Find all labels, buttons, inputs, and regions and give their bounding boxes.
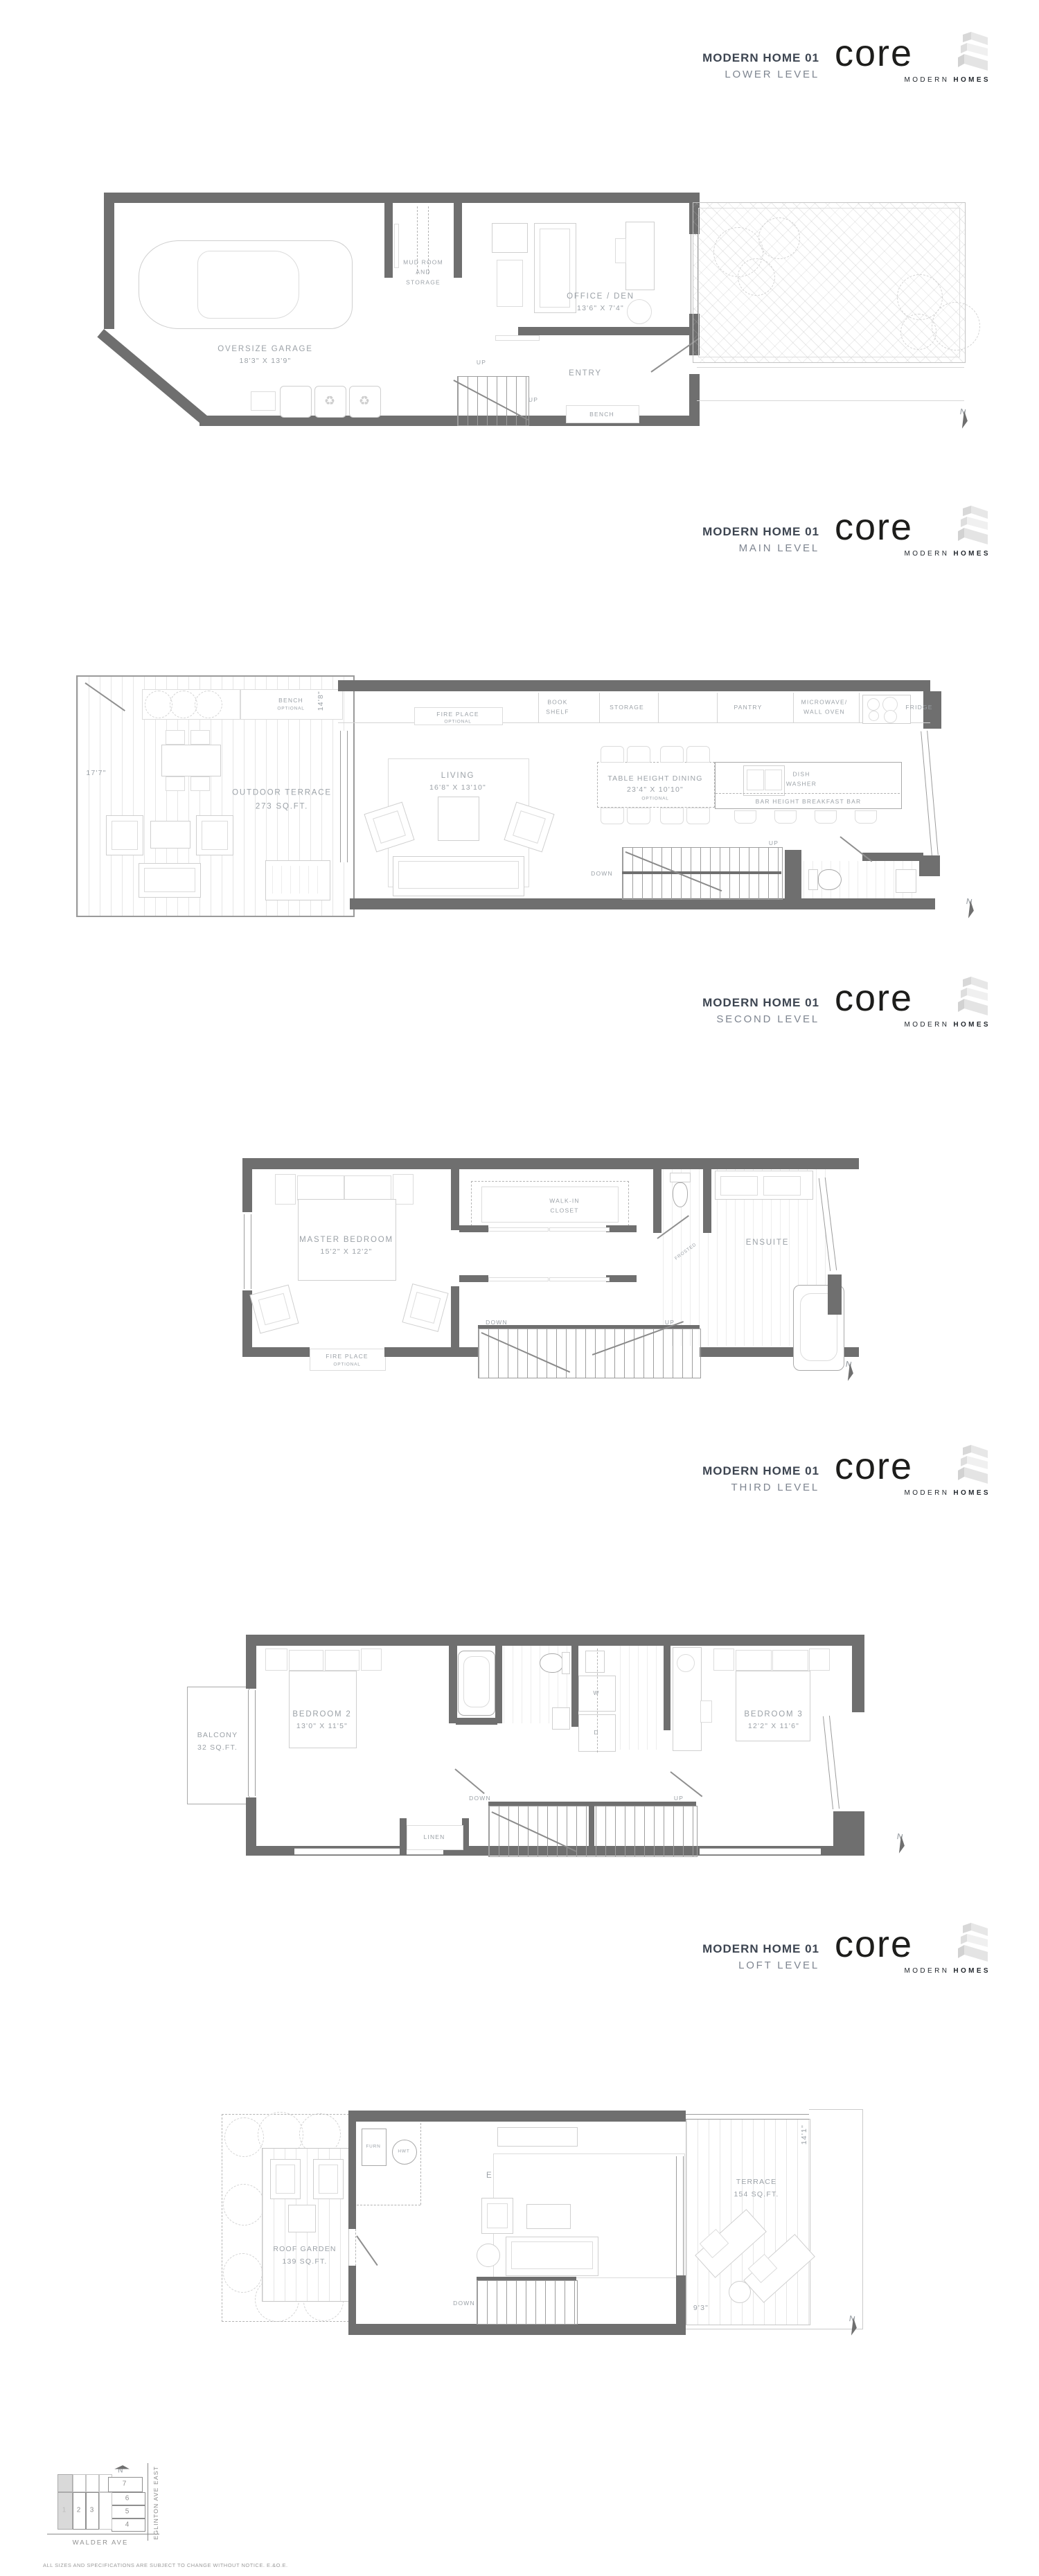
street-label-walder: WALDER AVE [73, 2539, 129, 2547]
roof-garden-door-leaf [356, 2235, 378, 2266]
recycle-icon: ♻ [359, 394, 370, 409]
dining-chair [601, 808, 624, 824]
roof-garden-label: ROOF GARDEN 139 SQ.FT. [273, 2244, 336, 2268]
north-arrow: N [951, 404, 973, 431]
deck-table [288, 2205, 316, 2232]
wall [828, 1274, 842, 1315]
toilet-tank [670, 1173, 691, 1182]
stairs-down-label: DOWN [486, 1317, 508, 1327]
shelf [394, 224, 399, 268]
wall [459, 1275, 488, 1282]
sofa-cushion [511, 2241, 593, 2269]
dining-chair [601, 746, 624, 763]
logo-wordmark: core [835, 508, 913, 546]
logo-tagline: MODERNHOMES [904, 550, 991, 558]
desk-chair [700, 1700, 712, 1723]
sliding-door-panel [549, 1277, 610, 1281]
header-main-level: MODERN HOME 01 MAIN LEVEL core MODERNHOM… [702, 514, 991, 567]
bar-stool [855, 810, 877, 824]
console-shelf [495, 335, 540, 341]
outdoor-chair [166, 776, 185, 791]
core-modern-homes-logo: core MODERNHOMES [835, 514, 991, 567]
wall [495, 1646, 502, 1723]
toilet-bowl [818, 869, 842, 890]
logo-tagline-homes: HOMES [953, 1021, 991, 1029]
office-label: OFFICE / DEN [567, 290, 634, 304]
bedroom3-dim: 12'2" X 11'6" [748, 1721, 799, 1733]
plan-main-level: BENCH OPTIONAL 17'7" OUTDOOR TERRACE 273… [73, 661, 973, 919]
toilet-bowl [673, 1182, 688, 1207]
wall [400, 1818, 407, 1856]
desk-chair [615, 238, 626, 263]
slanted-window [921, 731, 939, 855]
logo-wordmark: core [835, 1448, 913, 1485]
page-title: MODERN HOME 01 [702, 1942, 819, 1956]
master-bedroom-dim: 15'2" X 12'2" [321, 1246, 373, 1259]
logo-tagline-modern: MODERN [904, 550, 949, 558]
wall [246, 1646, 256, 1689]
wall [242, 1169, 252, 1212]
shrub [223, 2253, 263, 2293]
rug [677, 1654, 695, 1672]
terrace-label: TERRACE 154 SQ.FT. [734, 2176, 779, 2201]
mudroom-label: MUD ROOM AND STORAGE [403, 257, 443, 287]
stairs-up-label: UP [477, 357, 486, 367]
logo-wordmark: core [835, 979, 913, 1017]
wall [518, 327, 689, 335]
fireplace-label: FIRE PLACE [326, 1351, 368, 1361]
logo-tagline-modern: MODERN [904, 1967, 949, 1975]
stairs-up-label: UP [529, 395, 538, 405]
dining-optional: OPTIONAL [641, 794, 668, 802]
dining-chair [686, 808, 710, 824]
outdoor-sofa-cushion [144, 868, 195, 892]
washer-label: W [593, 1688, 599, 1698]
level-subtitle: THIRD LEVEL [702, 1482, 819, 1493]
terrace-depth-dim: 14'1" [800, 2124, 808, 2144]
stairs [478, 1329, 701, 1378]
tv-console [497, 2127, 578, 2147]
site-lot [99, 2492, 112, 2530]
wall [348, 2122, 356, 2229]
wall [242, 1347, 310, 1357]
terrace-width-dim: 17'7" [86, 767, 106, 780]
terrace-bench-optional: OPTIONAL [277, 704, 304, 712]
plan-third-level: BALCONY 32 SQ.FT. BEDROOM 2 13'0" X 11'5… [184, 1610, 907, 1861]
terrace-width-dim: 9'3" [693, 2302, 709, 2315]
cabinet-divider [538, 693, 539, 722]
headboard-shelf [325, 1650, 359, 1671]
sofa-cushion [540, 229, 570, 308]
north-arrow: N [888, 1829, 909, 1856]
page-title: MODERN HOME 01 [702, 525, 819, 539]
sofa-cushion [398, 861, 519, 889]
garden-path-line [697, 400, 964, 401]
lot-number: 6 [125, 2495, 130, 2503]
planter-shrub [195, 691, 222, 718]
armchair-cushion [487, 2203, 508, 2228]
core-modern-homes-logo: core MODERNHOMES [835, 40, 991, 93]
cabinet-divider [859, 693, 860, 722]
nightstand [275, 1174, 296, 1205]
stairs-down-label: DOWN [469, 1793, 491, 1803]
site-lot [73, 2474, 86, 2492]
site-lot [86, 2474, 99, 2492]
bedroom2-dim: 13'0" X 11'5" [296, 1721, 348, 1733]
wall [451, 1286, 459, 1347]
furnace-label: FURN [366, 2142, 380, 2150]
wall [104, 203, 114, 329]
hall-floor [620, 1646, 663, 1750]
logo-tagline: MODERNHOMES [904, 1021, 991, 1029]
terrace-depth-dim: 14'8" [317, 691, 325, 711]
toilet-bowl [540, 1653, 563, 1673]
side-table [477, 2244, 500, 2267]
sliding-door [676, 2156, 684, 2275]
living-dim: 16'8" X 13'10" [429, 782, 486, 794]
core-modern-homes-logo: core MODERNHOMES [835, 985, 991, 1038]
street-line-walder [47, 2534, 159, 2534]
nightstand [809, 1649, 830, 1671]
nightstand [361, 1649, 382, 1671]
lot-number: 1 [62, 2507, 67, 2514]
balcony-label: BALCONY 32 SQ.FT. [197, 1730, 238, 1755]
stairs [477, 2280, 578, 2325]
page-title: MODERN HOME 01 [702, 996, 819, 1010]
logo-wordmark: core [835, 35, 913, 72]
stairs-down-label: DOWN [453, 2298, 475, 2308]
window [244, 1214, 251, 1289]
street-line-eglinton [148, 2463, 148, 2541]
logo-wordmark: core [835, 1926, 913, 1963]
header-loft-level: MODERN HOME 01 LOFT LEVEL core MODERNHOM… [702, 1931, 991, 1984]
storage-label: STORAGE [610, 702, 644, 712]
cabinet-divider [599, 693, 600, 722]
bar-stool [774, 810, 797, 824]
island-overhang-line [716, 793, 900, 794]
fridge-label: FRIDGE [905, 702, 932, 712]
logo-tagline-homes: HOMES [953, 550, 991, 558]
bedroom3-label: BEDROOM 3 [744, 1708, 803, 1722]
page-title: MODERN HOME 01 [702, 51, 819, 65]
cooktop-burner [884, 710, 897, 723]
planter-shrub [145, 691, 172, 718]
lot-number: 5 [125, 2508, 130, 2516]
wall [703, 1169, 711, 1233]
desk [625, 222, 655, 290]
headboard-shelf [736, 1650, 772, 1671]
wall [664, 1646, 671, 1730]
deck-chair-cushion [276, 2165, 295, 2194]
lot-number: 4 [125, 2521, 130, 2529]
parapet-line [862, 2109, 863, 2329]
nightstand [265, 1649, 287, 1671]
sink-basin [747, 770, 764, 790]
north-arrow: N [837, 1356, 858, 1383]
north-arrow: N [840, 2311, 862, 2338]
parapet-line [686, 2329, 863, 2329]
ottoman [497, 260, 523, 307]
outdoor-chair [190, 730, 210, 745]
dining-chair [660, 808, 684, 824]
side-table [492, 223, 528, 253]
bbq-grill-grate [272, 866, 322, 894]
wall [653, 1169, 661, 1233]
parapet-line [809, 2109, 863, 2110]
dining-chair [686, 746, 710, 763]
wall [606, 1275, 637, 1282]
disclaimer-text: ALL SIZES AND SPECIFICATIONS ARE SUBJECT… [43, 2562, 288, 2568]
door-leaf [454, 1768, 484, 1794]
stair-divider [589, 1806, 594, 1856]
shrub [900, 314, 936, 350]
wall [833, 1811, 864, 1846]
floorplan-sheet: { "brand": { "logo_text": "core", "logo_… [0, 0, 1039, 2576]
cabinet-divider [793, 693, 794, 722]
wall [348, 2324, 686, 2335]
core-modern-homes-logo: core MODERNHOMES [835, 1453, 991, 1506]
house-icon [956, 1445, 989, 1486]
ensuite-label: ENSUITE [746, 1236, 789, 1250]
wall [449, 1646, 457, 1723]
logo-tagline-homes: HOMES [953, 1489, 991, 1497]
level-subtitle: LOFT LEVEL [702, 1960, 819, 1971]
outdoor-dining-table [161, 745, 221, 776]
dryer-label: D [594, 1727, 598, 1737]
hwt-label: HWT [398, 2147, 409, 2155]
cabinet-divider [658, 693, 659, 722]
header-second-level: MODERN HOME 01 SECOND LEVEL core MODERNH… [702, 985, 991, 1038]
logo-tagline: MODERNHOMES [904, 1489, 991, 1497]
master-bedroom-label: MASTER BEDROOM [299, 1234, 393, 1247]
sliding-door-panel [549, 1227, 610, 1232]
lounge-cushion [112, 821, 138, 850]
fireplace-optional: OPTIONAL [333, 1360, 360, 1368]
entry-label: ENTRY [569, 367, 602, 381]
shrub [223, 2184, 265, 2226]
headboard-shelf [289, 1650, 323, 1671]
wall [571, 1644, 578, 1727]
lot-number: 2 [77, 2507, 82, 2514]
storage-box [251, 391, 276, 411]
toilet-tank [562, 1652, 570, 1674]
wall [454, 203, 462, 278]
shrub [932, 302, 980, 350]
logo-tagline: MODERNHOMES [904, 76, 991, 84]
cooktop-burner [867, 698, 880, 711]
logo-tagline: MODERNHOMES [904, 1967, 991, 1975]
breakfast-bar-label: BAR HEIGHT BREAKFAST BAR [756, 797, 862, 806]
headboard-shelf [344, 1175, 391, 1200]
side-table [729, 2281, 751, 2303]
page-title: MODERN HOME 01 [702, 1464, 819, 1478]
shrub [758, 217, 800, 259]
house-icon [956, 506, 989, 547]
site-lot [57, 2474, 73, 2492]
linen-label: LINEN [423, 1832, 445, 1842]
wall [338, 680, 930, 691]
sliding-door [340, 731, 348, 862]
mech-dashed-line [420, 2123, 421, 2205]
house-icon [956, 1923, 989, 1964]
fireplace-optional: OPTIONAL [444, 718, 471, 725]
wall [676, 2275, 686, 2324]
wall [606, 1225, 637, 1232]
sliding-door-panel [488, 1277, 549, 1281]
wall [242, 1158, 859, 1169]
dining-chair [627, 746, 650, 763]
level-subtitle: SECOND LEVEL [702, 1013, 819, 1025]
balcony-door [248, 1690, 256, 1796]
walkin-closet-label: WALK-IN CLOSET [549, 1196, 580, 1216]
sink-basin [765, 770, 782, 790]
wall [384, 203, 393, 278]
bathtub-basin [463, 1656, 490, 1707]
laundry-sink [585, 1651, 605, 1673]
vanity-sink [763, 1176, 801, 1196]
wall [456, 1718, 497, 1725]
terrace-bench-label: BENCH [278, 695, 303, 705]
wall [350, 898, 935, 909]
bin [280, 386, 312, 418]
wall-angled [97, 329, 208, 424]
bench-label: BENCH [589, 409, 614, 419]
dishwasher-label: DISH WASHER [786, 770, 817, 790]
mech-dashed-line [357, 2205, 420, 2205]
wall [785, 850, 801, 898]
wall [852, 1646, 864, 1712]
bar-stool [734, 810, 756, 824]
headboard-shelf [297, 1175, 344, 1200]
core-modern-homes-logo: core MODERNHOMES [835, 1931, 991, 1984]
wall [459, 1225, 488, 1232]
garage-label: OVERSIZE GARAGE [217, 343, 313, 357]
plan-second-level: FIRE PLACE OPTIONAL MASTER BEDROOM 15'2"… [239, 1146, 866, 1385]
dining-chair [660, 746, 684, 763]
house-icon [956, 32, 989, 73]
dining-chair [627, 808, 650, 824]
north-arrow: N [957, 894, 979, 921]
cabinet-divider [717, 693, 718, 722]
stairs-up-label: UP [674, 1793, 684, 1803]
vanity-sink [720, 1176, 758, 1196]
microwave-label: MICROWAVE/ WALL OVEN [801, 698, 848, 718]
bedroom2-label: BEDROOM 2 [292, 1708, 351, 1722]
stair-rail [622, 871, 781, 874]
wall [348, 2266, 356, 2324]
house-icon [956, 977, 989, 1018]
street-label-eglinton: EGLINTON AVE EAST [152, 2466, 159, 2540]
office-dim: 13'6" X 7'4" [577, 303, 624, 315]
recycle-icon: ♻ [324, 394, 335, 409]
nightstand [713, 1649, 734, 1671]
stairs-up-label: UP [769, 838, 779, 848]
header-third-level: MODERN HOME 01 THIRD LEVEL core MODERNHO… [702, 1453, 991, 1506]
bath-sink [552, 1707, 570, 1730]
coffee-table [526, 2204, 571, 2229]
outdoor-chair [166, 730, 185, 745]
coffee-table [438, 797, 479, 841]
header-lower-level: MODERN HOME 01 LOWER LEVEL core MODERNHO… [702, 40, 991, 93]
headboard-shelf [772, 1650, 808, 1671]
lot-number: 7 [123, 2480, 127, 2488]
site-key-map: N 7 6 5 4 1 2 3 WALDER AVE EGLINTON AVE … [42, 2452, 222, 2570]
garage-dim: 18'3" X 13'9" [240, 355, 292, 368]
bookshelf-label: BOOK SHELF [546, 698, 569, 718]
coffee-table [150, 821, 190, 849]
lounge-cushion [202, 821, 228, 850]
planter-shrub [170, 691, 197, 718]
powder-door-leaf [840, 836, 872, 862]
stairs-down-label: DOWN [591, 869, 613, 878]
cooktop-burner [869, 711, 879, 721]
wall [384, 1347, 478, 1357]
slanted-window [823, 1716, 840, 1809]
garden-path-line [697, 367, 964, 368]
shrub [738, 258, 775, 296]
car-cabin [197, 251, 299, 319]
level-subtitle: MAIN LEVEL [702, 542, 819, 554]
powder-sink [896, 869, 916, 893]
logo-tagline-homes: HOMES [953, 76, 991, 84]
logo-tagline-homes: HOMES [953, 1967, 991, 1975]
level-subtitle: LOWER LEVEL [702, 69, 819, 80]
living-label: LIVING [441, 770, 475, 783]
logo-tagline-modern: MODERN [904, 1489, 949, 1497]
wall [348, 2111, 686, 2122]
window [700, 1848, 821, 1855]
laundry-dashed-line [597, 1649, 598, 1752]
terrace-rail [686, 2114, 809, 2120]
wall [451, 1169, 459, 1230]
lot-number: 3 [90, 2507, 95, 2514]
plan-lower-level: OVERSIZE GARAGE 18'3" X 13'9" ♻ ♻ MUD RO… [104, 193, 970, 450]
wall [104, 193, 700, 203]
toilet-tank [808, 869, 818, 890]
deck-chair-cushion [319, 2165, 338, 2194]
outdoor-terrace-label: OUTDOOR TERRACE 273 SQ.FT. [232, 786, 332, 813]
stairs-up-label: UP [665, 1317, 675, 1327]
bar-stool [815, 810, 837, 824]
sliding-door-panel [488, 1227, 549, 1232]
wall [246, 1635, 864, 1646]
pantry-label: PANTRY [734, 702, 763, 712]
logo-tagline-modern: MODERN [904, 76, 949, 84]
plan-loft-level: ROOF GARDEN 139 SQ.FT. FURN HWT ENTERTAI… [215, 2081, 869, 2339]
outdoor-chair [190, 776, 210, 791]
logo-tagline-modern: MODERN [904, 1021, 949, 1029]
